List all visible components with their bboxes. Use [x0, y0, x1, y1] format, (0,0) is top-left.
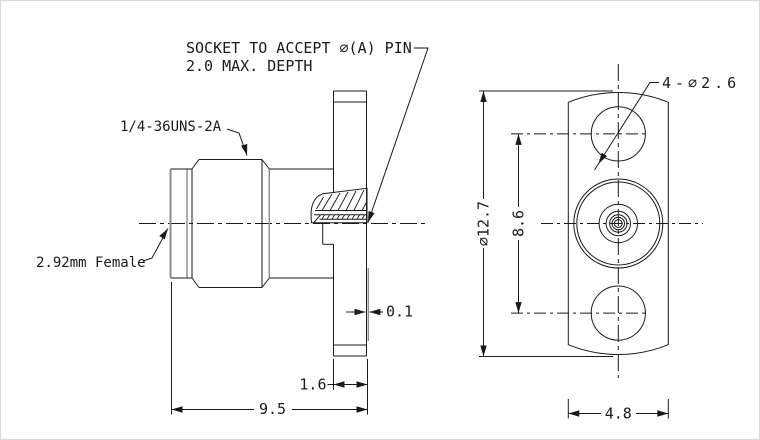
bead-outline: [311, 188, 367, 223]
connector-type-leader: [143, 227, 171, 261]
side-view: 9.5 1.6 0.1: [36, 39, 429, 418]
dim-face-offset-text: 0.1: [386, 303, 413, 321]
bead-hatch: [317, 190, 368, 211]
socket-contact-hatch: [322, 215, 365, 219]
drawing-sheet: 9.5 1.6 0.1: [0, 0, 760, 440]
thread-spec-leader: [227, 129, 250, 156]
dim-hole-spacing: 8.6: [510, 134, 528, 313]
socket-funnel: [314, 215, 321, 223]
body-step: [323, 224, 334, 245]
dim-flange-diameter-text: ∅12.7: [475, 201, 493, 246]
connector-type-label: 2.92mm Female: [36, 255, 146, 271]
thread-spec-label: 1/4-36UNS-2A: [120, 119, 222, 135]
dim-overall-length-text: 9.5: [259, 400, 286, 418]
socket-note-line2: 2.0 MAX. DEPTH: [186, 57, 312, 75]
socket-note-line1: SOCKET TO ACCEPT ∅(A) PIN: [186, 39, 412, 57]
dielectric-bead-section: [311, 188, 367, 223]
hole-callout-leader: [595, 83, 660, 171]
dim-face-offset: 0.1: [346, 303, 413, 321]
dim-flange-thickness: 1.6: [299, 359, 367, 394]
front-view: ∅12.7 8.6 4.8 4-∅2.6: [475, 64, 741, 423]
dim-hole-spacing-text: 8.6: [510, 210, 528, 237]
dim-flange-thickness-text: 1.6: [299, 376, 326, 394]
technical-drawing: 9.5 1.6 0.1: [1, 1, 759, 439]
hole-callout-label: 4-∅2.6: [662, 74, 740, 92]
dim-overall-length: 9.5: [172, 282, 368, 418]
dim-flange-width-text: 4.8: [605, 405, 632, 423]
socket-note-leader: [365, 48, 428, 224]
dim-flange-width: 4.8: [568, 399, 668, 423]
